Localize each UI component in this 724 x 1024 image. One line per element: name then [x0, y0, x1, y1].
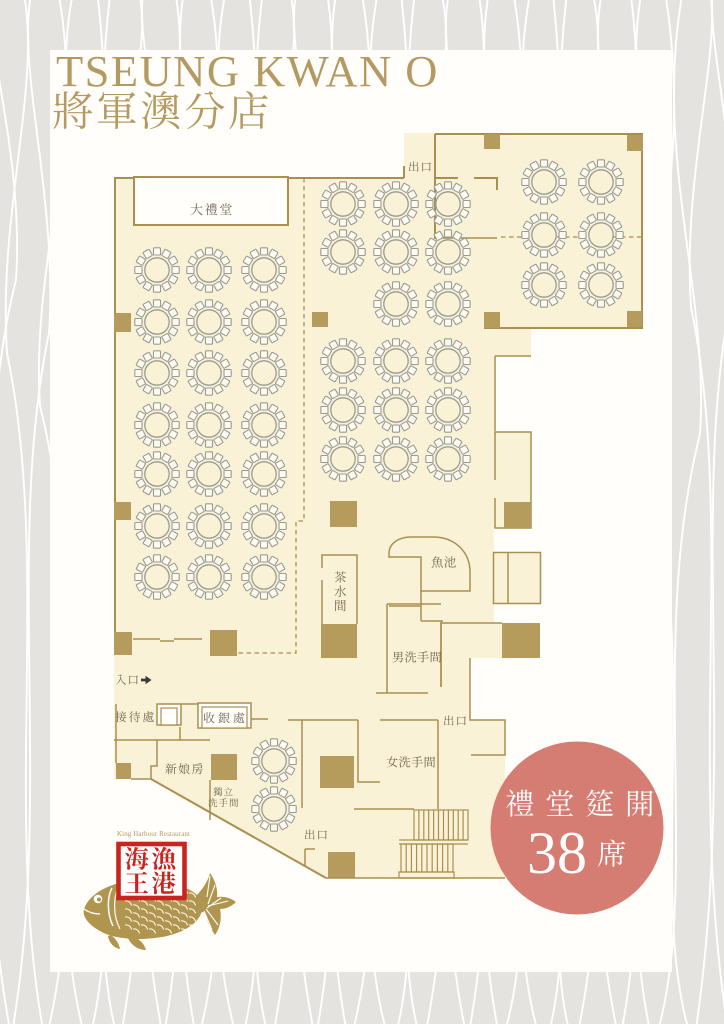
svg-text:38: 38: [527, 820, 587, 886]
svg-text:King Harbour Restaurant: King Harbour Restaurant: [117, 830, 190, 838]
svg-text:TSEUNG KWAN O: TSEUNG KWAN O: [56, 46, 439, 96]
